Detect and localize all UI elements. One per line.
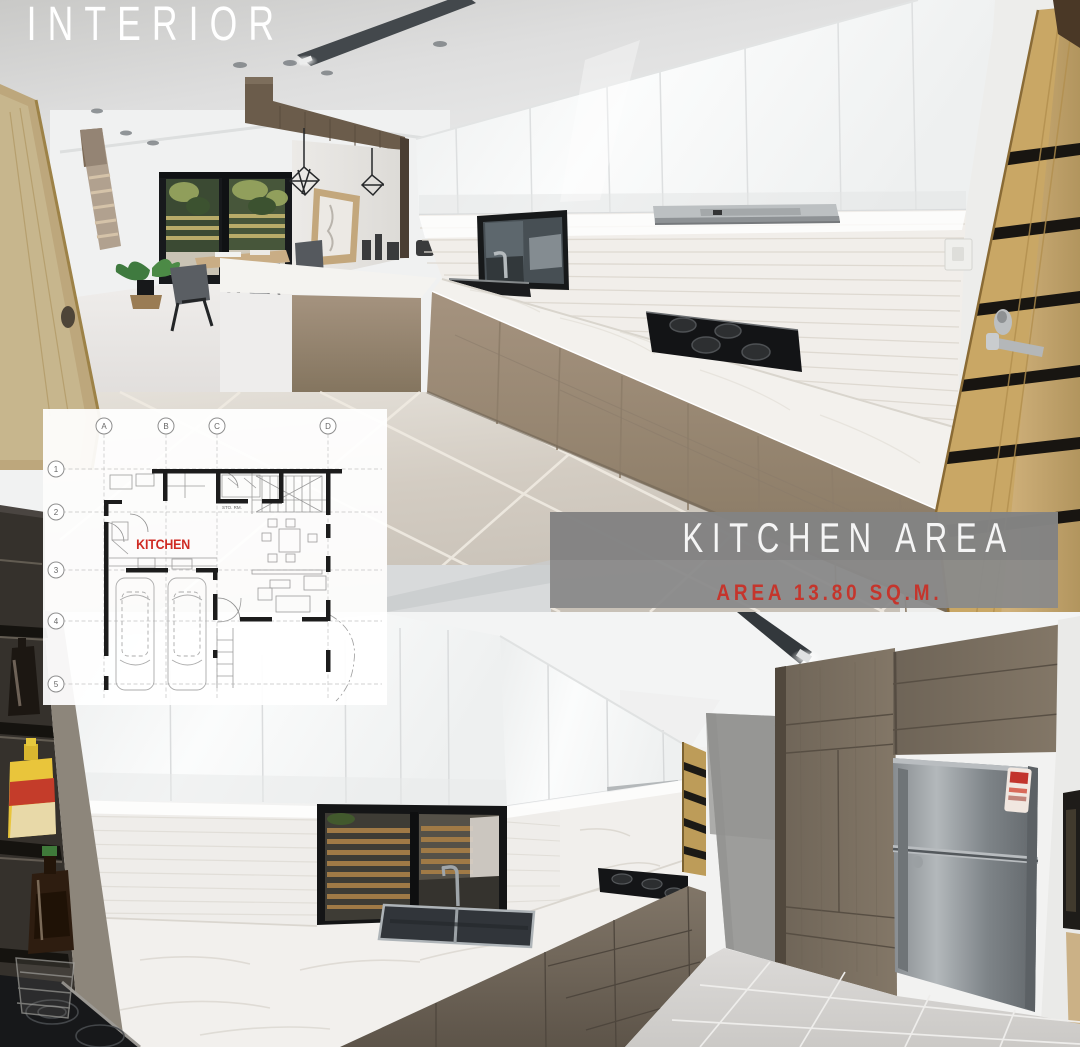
svg-text:INTERIOR: INTERIOR (27, 0, 285, 50)
svg-text:C: C (214, 422, 220, 431)
svg-text:KITCHEN: KITCHEN (136, 537, 190, 553)
svg-text:AREA 13.80 SQ.M.: AREA 13.80 SQ.M. (716, 581, 942, 606)
svg-text:B: B (163, 422, 168, 431)
svg-text:STO. RM.: STO. RM. (222, 505, 242, 510)
svg-text:1: 1 (54, 465, 59, 474)
svg-text:KITCHEN AREA: KITCHEN AREA (682, 513, 1014, 561)
svg-text:5: 5 (54, 680, 59, 689)
svg-text:4: 4 (54, 617, 59, 626)
svg-text:2: 2 (54, 508, 59, 517)
svg-text:3: 3 (54, 566, 59, 575)
svg-text:D: D (325, 422, 331, 431)
svg-text:A: A (101, 422, 107, 431)
